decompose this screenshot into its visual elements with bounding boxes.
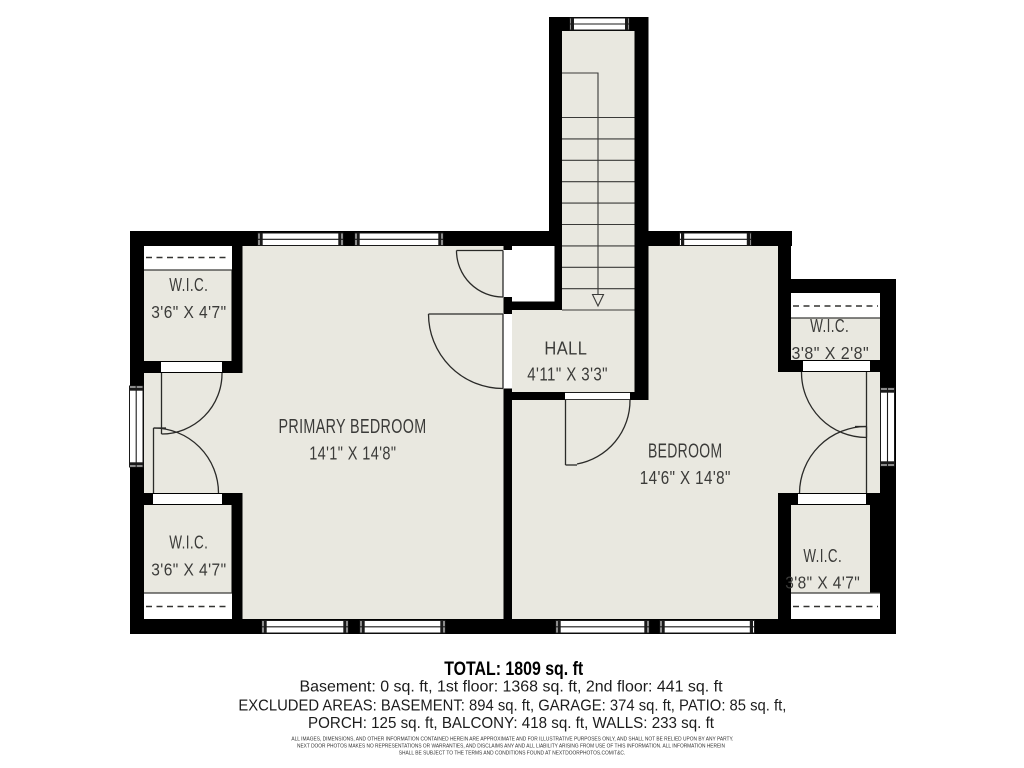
svg-text:W.I.C.: W.I.C. xyxy=(169,275,208,295)
svg-text:PRIMARY BEDROOM: PRIMARY BEDROOM xyxy=(279,416,427,438)
svg-text:EXCLUDED AREAS: BASEMENT: 894: EXCLUDED AREAS: BASEMENT: 894 sq. ft, GA… xyxy=(238,698,786,715)
svg-text:PORCH: 125 sq. ft, BALCONY: 41: PORCH: 125 sq. ft, BALCONY: 418 sq. ft, … xyxy=(308,715,715,732)
svg-text:4'11" X 3'3": 4'11" X 3'3" xyxy=(527,365,608,385)
svg-text:ALL IMAGES, DIMENSIONS, AND OT: ALL IMAGES, DIMENSIONS, AND OTHER INFORM… xyxy=(291,737,733,743)
svg-text:W.I.C.: W.I.C. xyxy=(169,532,208,552)
svg-text:W.I.C.: W.I.C. xyxy=(810,316,849,336)
svg-text:SHALL BE SUBJECT TO THE TERMS: SHALL BE SUBJECT TO THE TERMS AND CONDIT… xyxy=(399,751,626,757)
svg-text:14'6" X 14'8": 14'6" X 14'8" xyxy=(640,467,731,488)
svg-text:BEDROOM: BEDROOM xyxy=(648,441,723,463)
svg-text:3'6" X 4'7": 3'6" X 4'7" xyxy=(151,302,226,322)
svg-text:HALL: HALL xyxy=(544,339,587,359)
svg-text:14'1" X 14'8": 14'1" X 14'8" xyxy=(309,443,396,464)
svg-text:3'8" X 2'8": 3'8" X 2'8" xyxy=(792,343,870,363)
svg-text:3'6" X 4'7": 3'6" X 4'7" xyxy=(151,559,226,579)
svg-text:Basement: 0 sq. ft, 1st floor:: Basement: 0 sq. ft, 1st floor: 1368 sq. … xyxy=(300,679,724,696)
svg-text:NEXT DOOR PHOTOS MAKES NO REPR: NEXT DOOR PHOTOS MAKES NO REPRESENTATION… xyxy=(297,744,725,750)
svg-text:3'8" X 4'7": 3'8" X 4'7" xyxy=(785,572,860,592)
svg-text:TOTAL: 1809 sq. ft: TOTAL: 1809 sq. ft xyxy=(444,659,584,680)
svg-text:W.I.C.: W.I.C. xyxy=(803,546,842,566)
